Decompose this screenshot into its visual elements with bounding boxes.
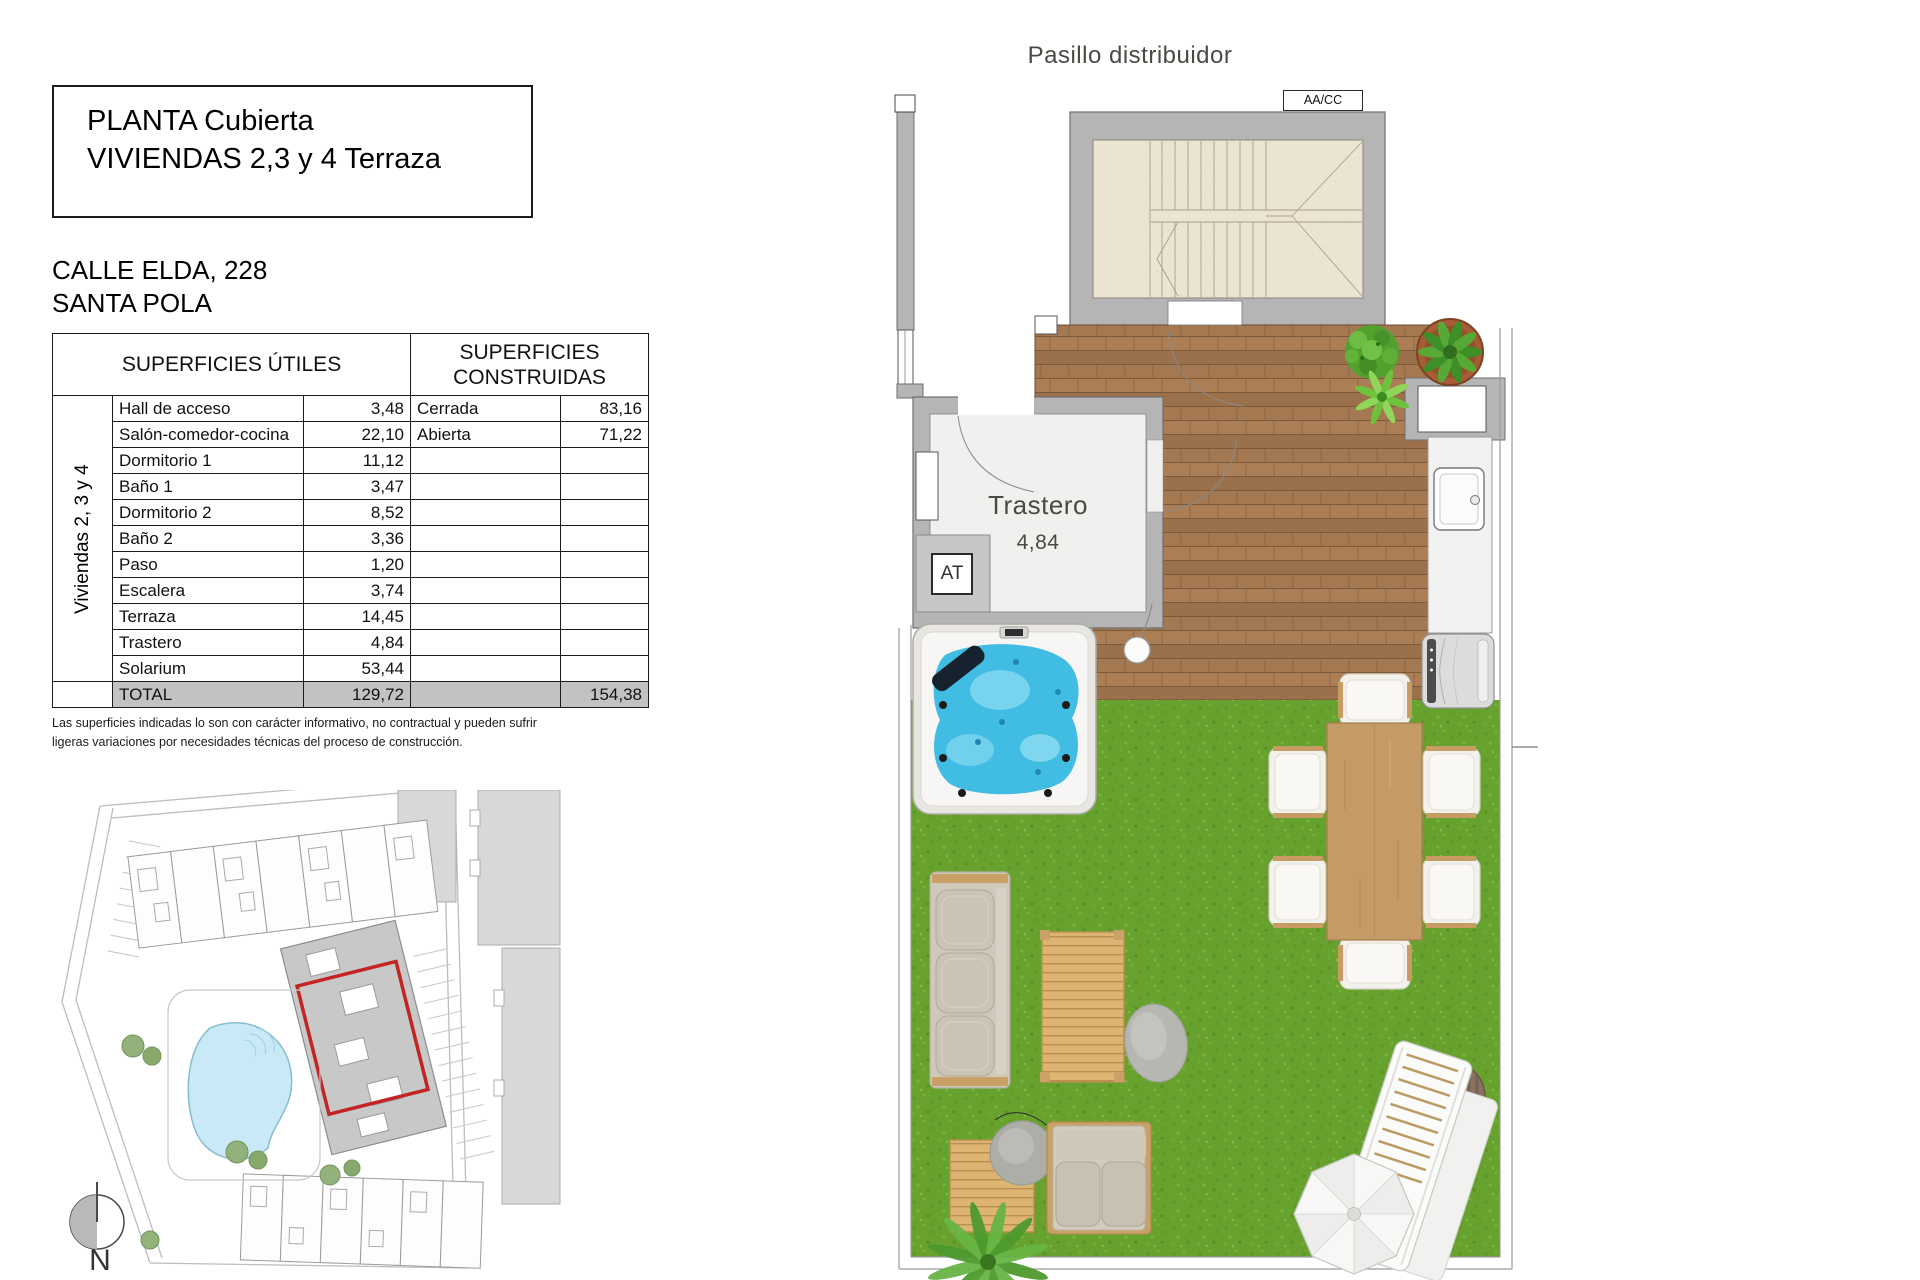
table-row: Dormitorio 2 8,52	[53, 500, 649, 526]
coffee-table	[1040, 930, 1124, 1082]
cell-value: 11,12	[304, 448, 411, 474]
houses-row-bottom	[240, 1174, 483, 1268]
stairwell-block	[1070, 112, 1385, 325]
table-row: Baño 2 3,36	[53, 526, 649, 552]
storage-room-area: 4,84	[968, 531, 1108, 555]
cell-cvalue	[561, 552, 649, 578]
dining-chair	[1423, 746, 1480, 818]
cell-cvalue	[561, 500, 649, 526]
cell-empty	[53, 682, 113, 708]
dining-chair	[1338, 674, 1412, 726]
table-row: Escalera 3,74	[53, 578, 649, 604]
cell-cvalue	[561, 526, 649, 552]
table-row: Solarium 53,44	[53, 656, 649, 682]
storage-room-label: Trastero	[968, 490, 1108, 521]
disclaimer: Las superficies indicadas lo son con car…	[52, 714, 692, 752]
cell-cvalue	[561, 448, 649, 474]
cell-empty	[411, 682, 561, 708]
cell-name: Salón-comedor-cocina	[113, 422, 304, 448]
cell-value: 4,84	[304, 630, 411, 656]
cell-name: Solarium	[113, 656, 304, 682]
address-street: CALLE ELDA, 228	[52, 254, 267, 287]
cell-name: Escalera	[113, 578, 304, 604]
garden-sofa	[930, 872, 1010, 1088]
cell-cname	[411, 474, 561, 500]
plan-title-line2: VIVIENDAS 2,3 y 4 Terraza	[87, 140, 531, 178]
cell-name: Baño 2	[113, 526, 304, 552]
group-label: Viviendas 2, 3 y 4	[72, 404, 94, 674]
dining-chair	[1423, 856, 1480, 928]
table-row: Baño 1 3,47	[53, 474, 649, 500]
cell-value: 22,10	[304, 422, 411, 448]
title-box: PLANTA Cubierta VIVIENDAS 2,3 y 4 Terraz…	[52, 85, 533, 218]
cell-cvalue	[561, 474, 649, 500]
cell-cvalue	[561, 656, 649, 682]
cell-cname	[411, 604, 561, 630]
group-label-cell: Viviendas 2, 3 y 4	[53, 396, 113, 682]
compass-north-label: N	[80, 1244, 120, 1278]
cell-cname	[411, 630, 561, 656]
cell-cname: Cerrada	[411, 396, 561, 422]
wall-niche	[916, 452, 938, 520]
address-city: SANTA POLA	[52, 287, 267, 320]
side-door-gap	[1147, 440, 1163, 512]
at-box-label: AT	[931, 553, 973, 595]
dining-chair	[1269, 746, 1326, 818]
table-row: Salón-comedor-cocina 22,10 Abierta 71,22	[53, 422, 649, 448]
cell-cname	[411, 552, 561, 578]
cell-value: 3,47	[304, 474, 411, 500]
door-gap-top	[1168, 301, 1242, 325]
cell-cname	[411, 656, 561, 682]
cell-value: 8,52	[304, 500, 411, 526]
table-total-row: TOTAL 129,72 154,38	[53, 682, 649, 708]
plan-title-line1: PLANTA Cubierta	[87, 102, 531, 140]
cell-cvalue	[561, 604, 649, 630]
cell-name: Trastero	[113, 630, 304, 656]
cell-name: Paso	[113, 552, 304, 578]
floor-plan	[880, 40, 1570, 1280]
cell-cname	[411, 526, 561, 552]
parasol-umbrella	[1294, 1154, 1414, 1274]
cell-cname	[411, 448, 561, 474]
cell-name: Hall de acceso	[113, 396, 304, 422]
cell-value: 14,45	[304, 604, 411, 630]
table-row: Viviendas 2, 3 y 4 Hall de acceso 3,48 C…	[53, 396, 649, 422]
corridor-left-wall	[895, 95, 923, 398]
potted-plant	[1417, 319, 1483, 385]
main-building	[281, 920, 447, 1154]
cell-cvalue: 83,16	[561, 396, 649, 422]
cell-cvalue	[561, 578, 649, 604]
deck-corner-box	[1035, 316, 1057, 334]
cell-cname	[411, 578, 561, 604]
compass-icon	[70, 1182, 124, 1249]
cell-name: Baño 1	[113, 474, 304, 500]
table-row: Terraza 14,45	[53, 604, 649, 630]
cell-value: 3,74	[304, 578, 411, 604]
dining-chair	[1338, 937, 1412, 989]
total-construidas: 154,38	[561, 682, 649, 708]
table-row: Paso 1,20	[53, 552, 649, 578]
cell-cvalue: 71,22	[561, 422, 649, 448]
loveseat	[1047, 1122, 1151, 1234]
table-row: Trastero 4,84	[53, 630, 649, 656]
faucet-icon	[1471, 496, 1480, 505]
total-label: TOTAL	[113, 682, 304, 708]
cell-name: Dormitorio 2	[113, 500, 304, 526]
cell-cname: Abierta	[411, 422, 561, 448]
table-header-row: SUPERFICIES ÚTILES SUPERFICIES CONSTRUID…	[53, 334, 649, 396]
address-block: CALLE ELDA, 228 SANTA POLA	[52, 254, 267, 320]
surfaces-table: SUPERFICIES ÚTILES SUPERFICIES CONSTRUID…	[52, 333, 649, 708]
plan-sheet: PLANTA Cubierta VIVIENDAS 2,3 y 4 Terraz…	[0, 0, 1920, 1280]
total-utiles: 129,72	[304, 682, 411, 708]
jacuzzi	[913, 624, 1096, 814]
cell-name: Terraza	[113, 604, 304, 630]
bbq-grill	[1422, 634, 1494, 708]
site-plan	[40, 790, 640, 1280]
cell-cvalue	[561, 630, 649, 656]
disclaimer-line1: Las superficies indicadas lo son con car…	[52, 714, 692, 733]
corridor-label: Pasillo distribuidor	[1020, 42, 1240, 70]
header-utiles: SUPERFICIES ÚTILES	[53, 334, 411, 396]
cell-value: 53,44	[304, 656, 411, 682]
cell-name: Dormitorio 1	[113, 448, 304, 474]
header-construidas: SUPERFICIES CONSTRUIDAS	[411, 334, 649, 396]
table-row: Dormitorio 1 11,12	[53, 448, 649, 474]
cell-value: 3,36	[304, 526, 411, 552]
cell-cname	[411, 500, 561, 526]
cell-value: 1,20	[304, 552, 411, 578]
dining-table	[1327, 723, 1422, 940]
cell-value: 3,48	[304, 396, 411, 422]
ac-unit-label: AA/CC	[1283, 90, 1363, 111]
disclaimer-line2: ligeras variaciones por necesidades técn…	[52, 733, 692, 752]
dining-chair	[1269, 856, 1326, 928]
